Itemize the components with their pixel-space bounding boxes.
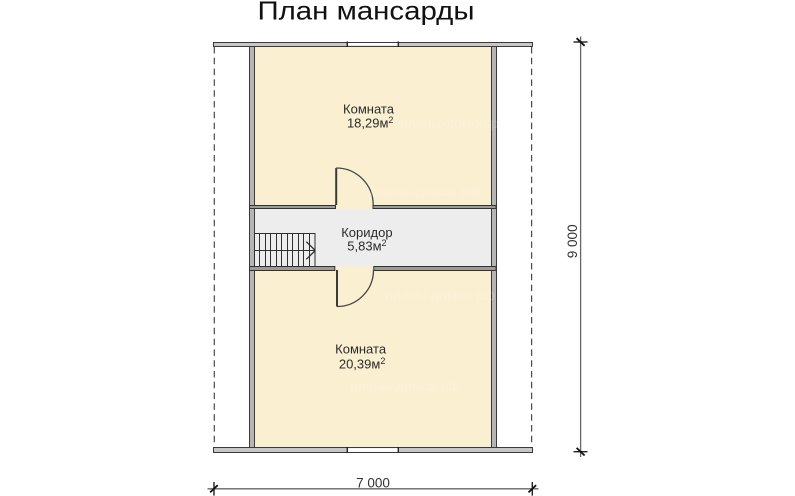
svg-text:Комната: Комната [335, 342, 387, 357]
svg-text:20,39м2: 20,39м2 [339, 356, 386, 372]
svg-text:5,83м2: 5,83м2 [347, 238, 386, 254]
svg-text:планы-домов.рф: планы-домов.рф [370, 183, 480, 199]
svg-text:Комната: Комната [343, 102, 395, 117]
svg-text:18,29м2: 18,29м2 [347, 115, 394, 131]
svg-text:планы-домов.рф: планы-домов.рф [385, 287, 495, 303]
svg-text:планы-домов.рф: планы-домов.рф [400, 115, 510, 131]
svg-text:планы-домов.рф: планы-домов.рф [350, 378, 460, 394]
svg-text:7 000: 7 000 [356, 475, 390, 490]
svg-text:9 000: 9 000 [565, 224, 580, 258]
svg-text:План мансарды: План мансарды [258, 0, 475, 26]
